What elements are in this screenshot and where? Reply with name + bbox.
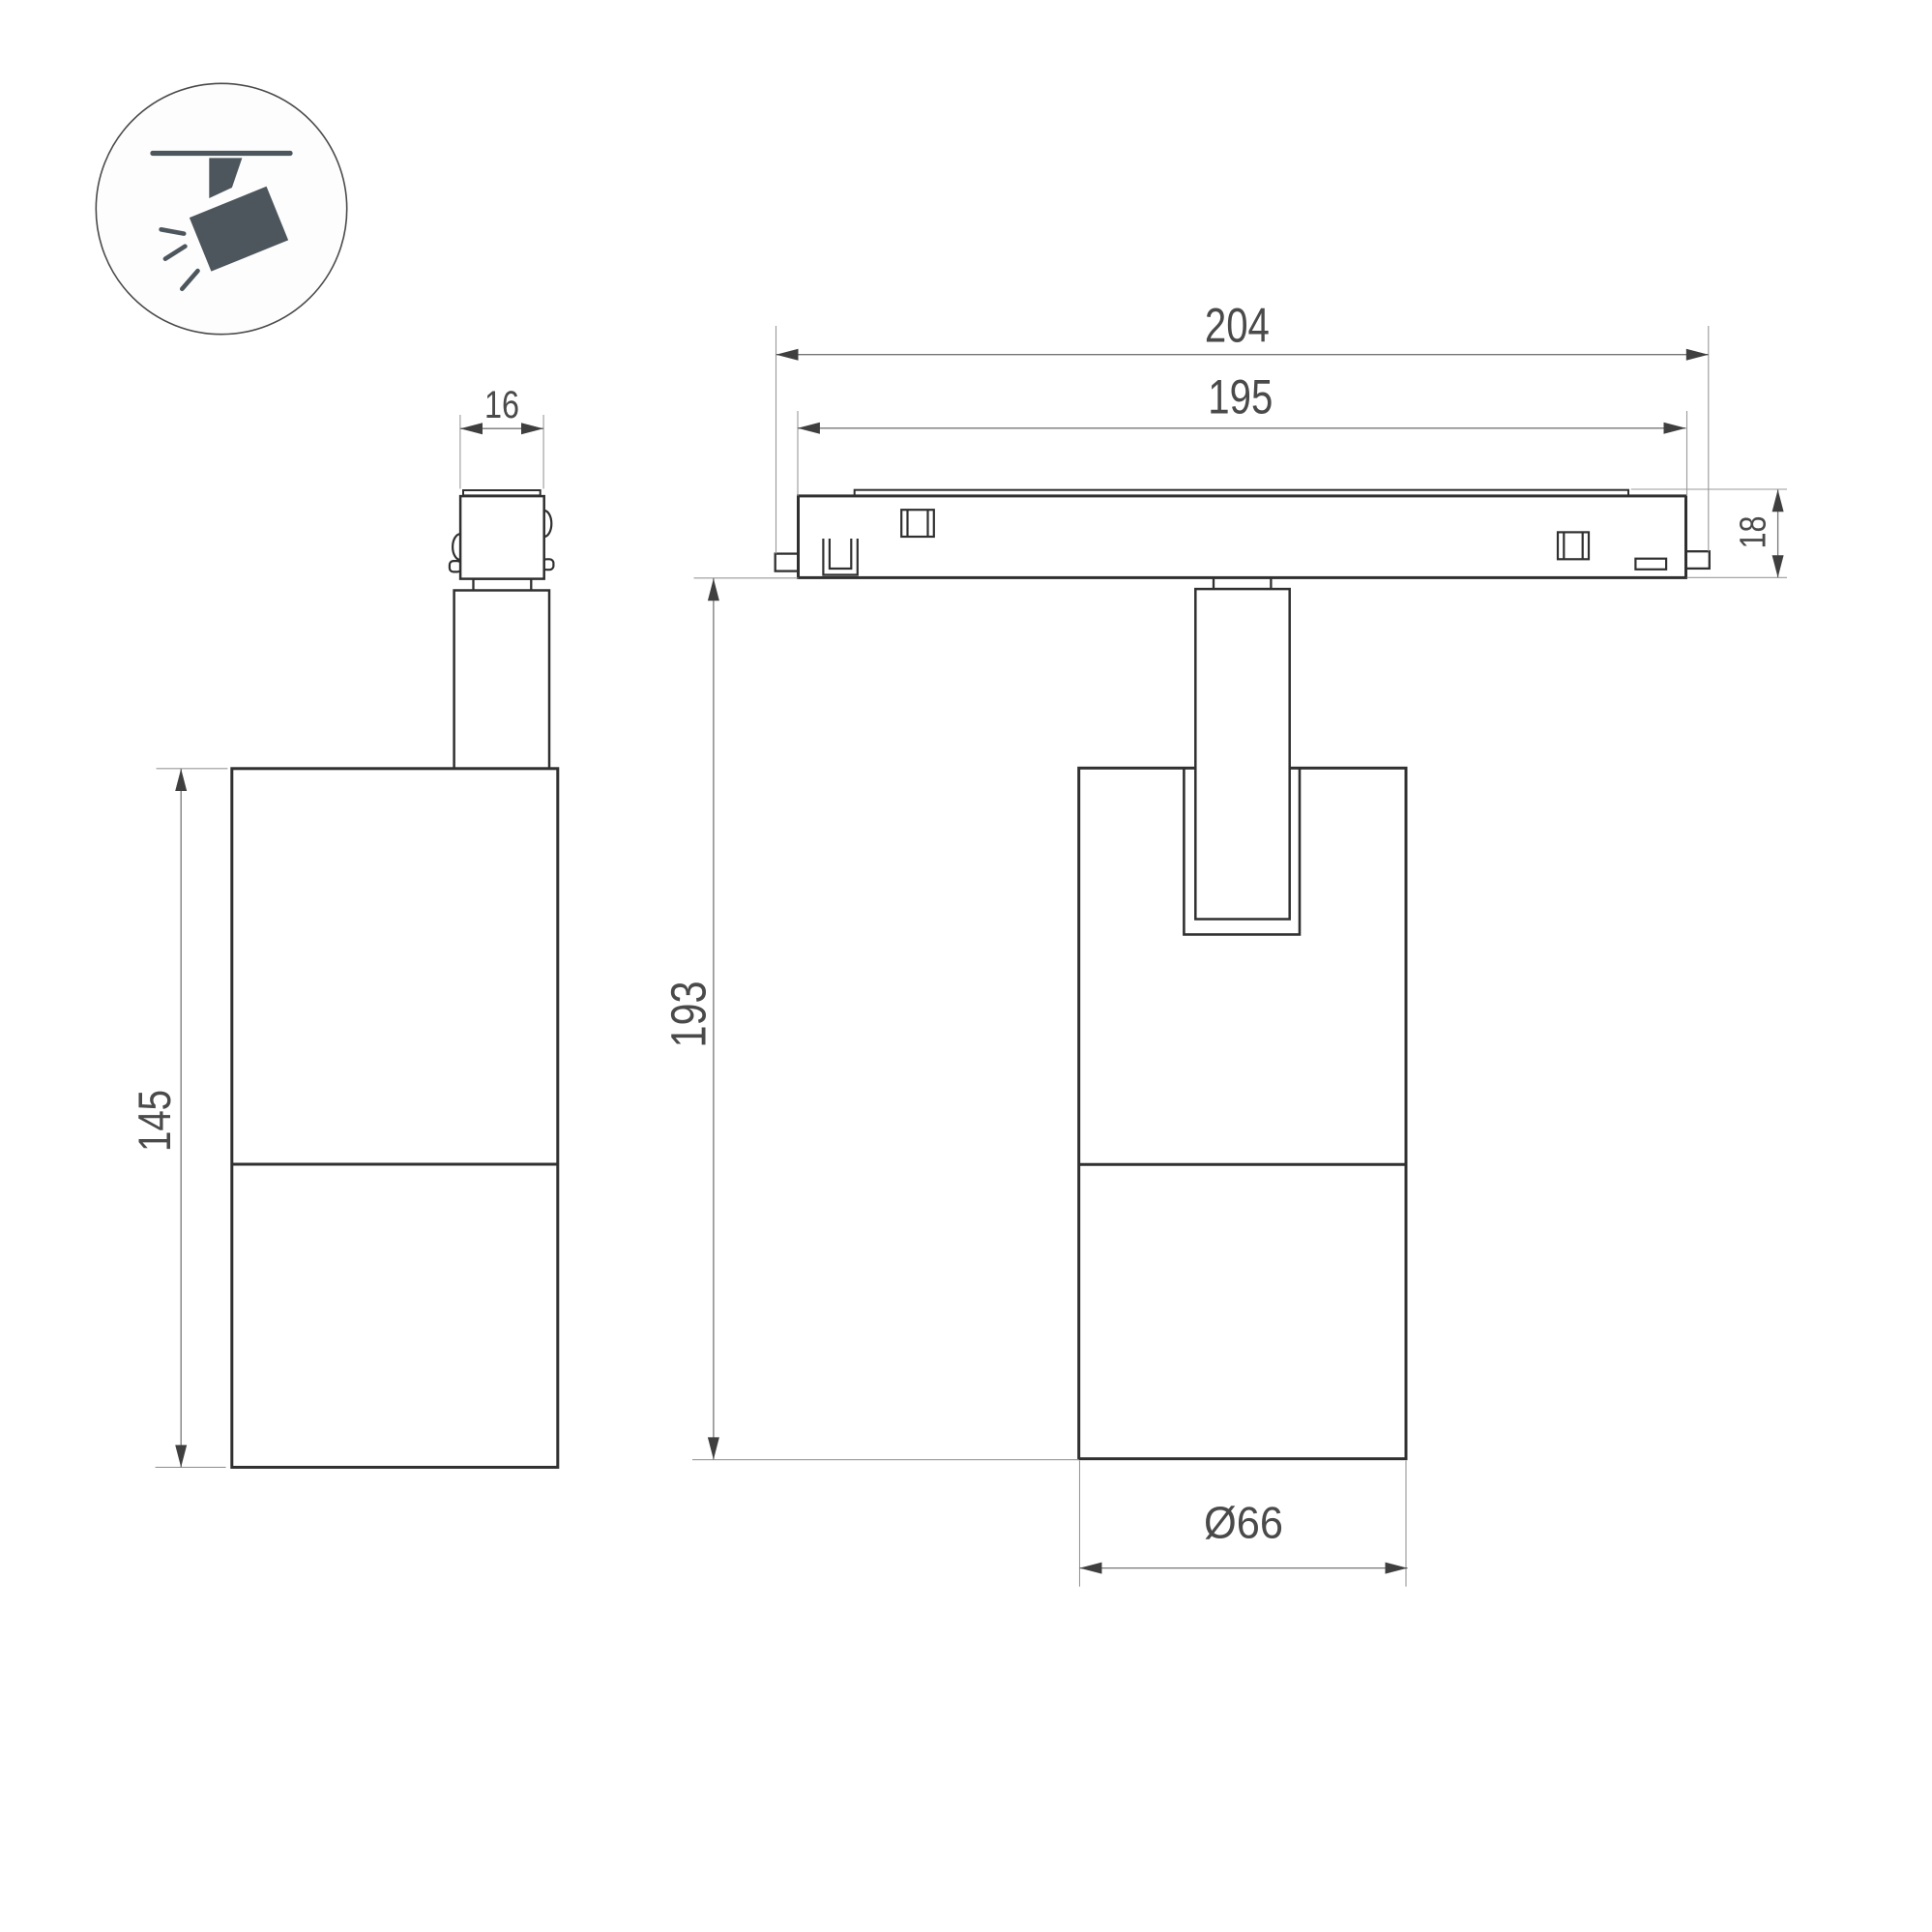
svg-text:Ø66: Ø66 bbox=[1204, 1498, 1283, 1548]
svg-text:204: 204 bbox=[1205, 298, 1270, 352]
svg-text:18: 18 bbox=[1734, 516, 1774, 549]
svg-text:195: 195 bbox=[1208, 369, 1273, 424]
svg-text:16: 16 bbox=[484, 384, 519, 426]
svg-text:145: 145 bbox=[130, 1090, 181, 1152]
svg-text:193: 193 bbox=[661, 981, 717, 1048]
